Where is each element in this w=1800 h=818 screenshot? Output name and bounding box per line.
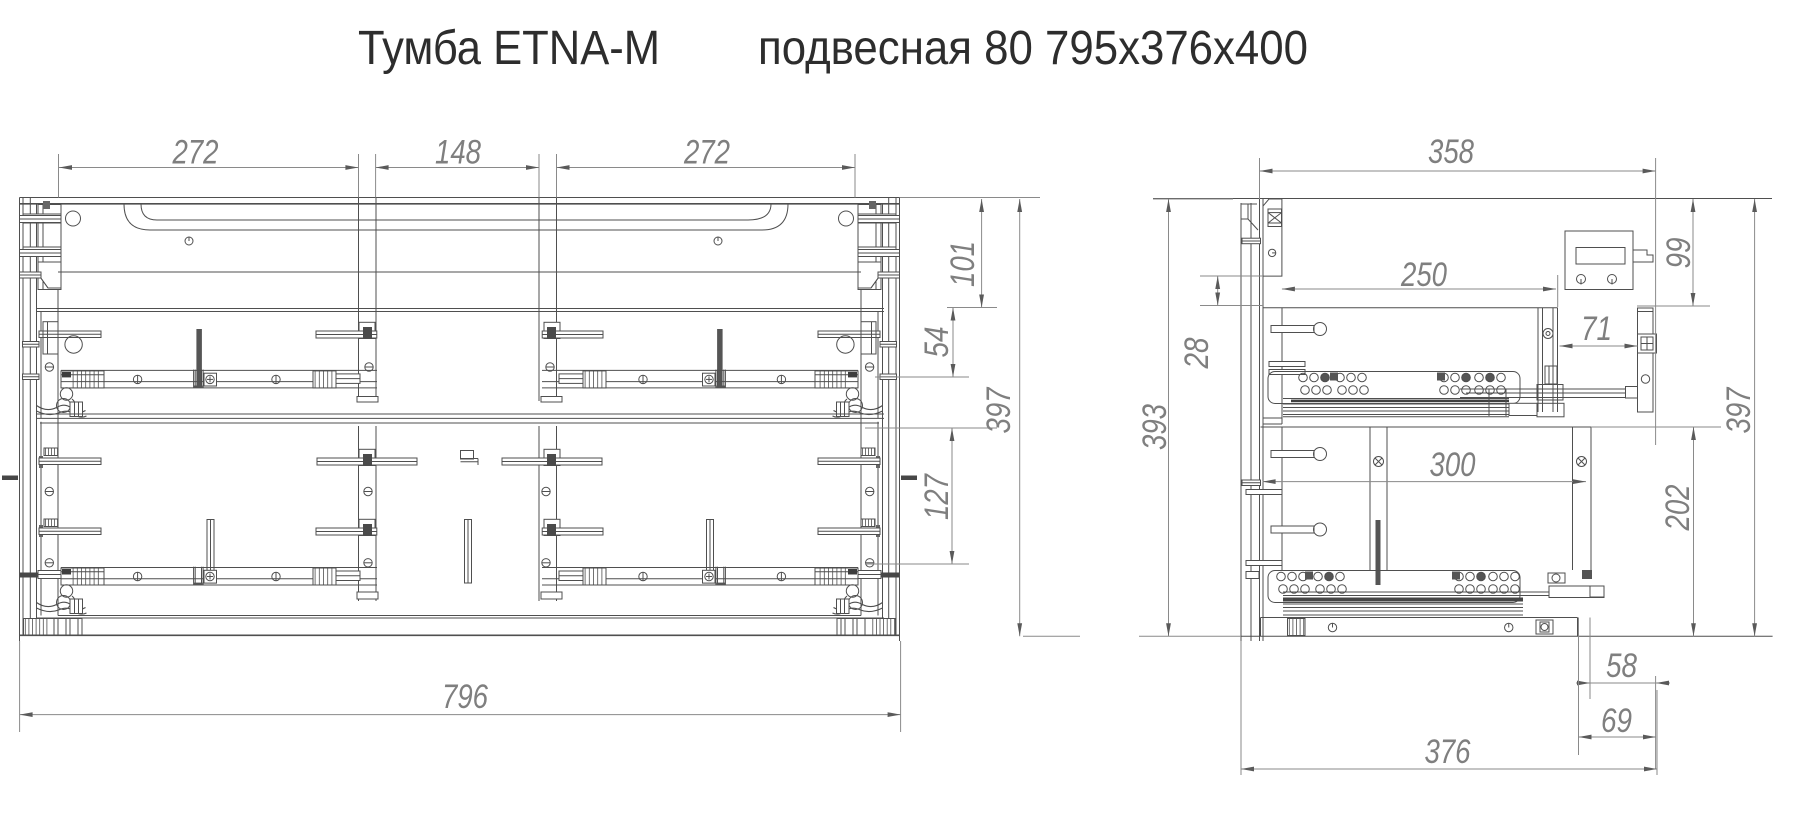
svg-text:272: 272 [683,134,730,172]
svg-text:300: 300 [1430,446,1476,484]
svg-text:подвесная 80 795х376х400: подвесная 80 795х376х400 [758,22,1308,75]
svg-text:397: 397 [980,387,1018,434]
svg-text:250: 250 [1400,256,1447,294]
svg-text:54: 54 [918,327,956,358]
svg-text:127: 127 [918,473,956,520]
svg-text:71: 71 [1581,310,1612,348]
svg-text:202: 202 [1659,484,1697,531]
svg-text:393: 393 [1136,404,1174,450]
svg-text:28: 28 [1178,337,1216,369]
svg-text:101: 101 [944,241,982,287]
svg-text:376: 376 [1425,733,1471,771]
svg-text:58: 58 [1606,647,1637,685]
svg-text:397: 397 [1720,387,1758,434]
svg-text:69: 69 [1601,702,1632,740]
svg-text:272: 272 [172,134,219,172]
svg-text:Тумба ETNA-M: Тумба ETNA-M [358,22,660,75]
svg-text:796: 796 [442,678,488,716]
svg-text:358: 358 [1428,133,1474,171]
svg-text:148: 148 [435,134,481,172]
svg-text:99: 99 [1660,237,1698,268]
